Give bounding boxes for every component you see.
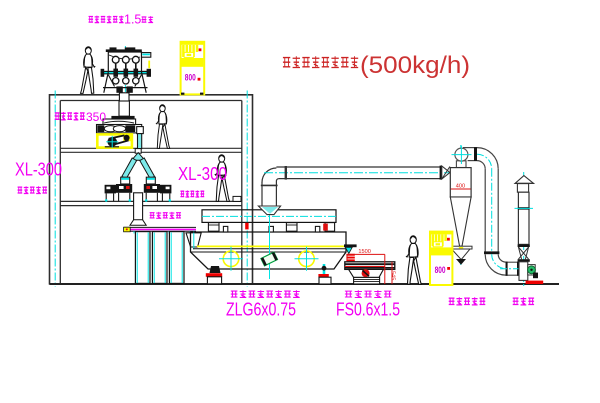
svg-text:1500: 1500 [358,249,370,255]
svg-text:1.5: 1.5 [124,13,141,27]
svg-text:350: 350 [86,110,106,124]
svg-text:545: 545 [389,271,395,280]
svg-text:XL-300: XL-300 [15,160,62,180]
svg-text:XL-300: XL-300 [178,164,227,184]
svg-text:800: 800 [435,265,446,276]
svg-text:ZLG6x0.75: ZLG6x0.75 [226,300,296,320]
svg-text:800: 800 [185,73,196,84]
svg-text:FS0.6x1.5: FS0.6x1.5 [336,300,400,320]
svg-text:(500kg/h): (500kg/h) [360,52,470,79]
